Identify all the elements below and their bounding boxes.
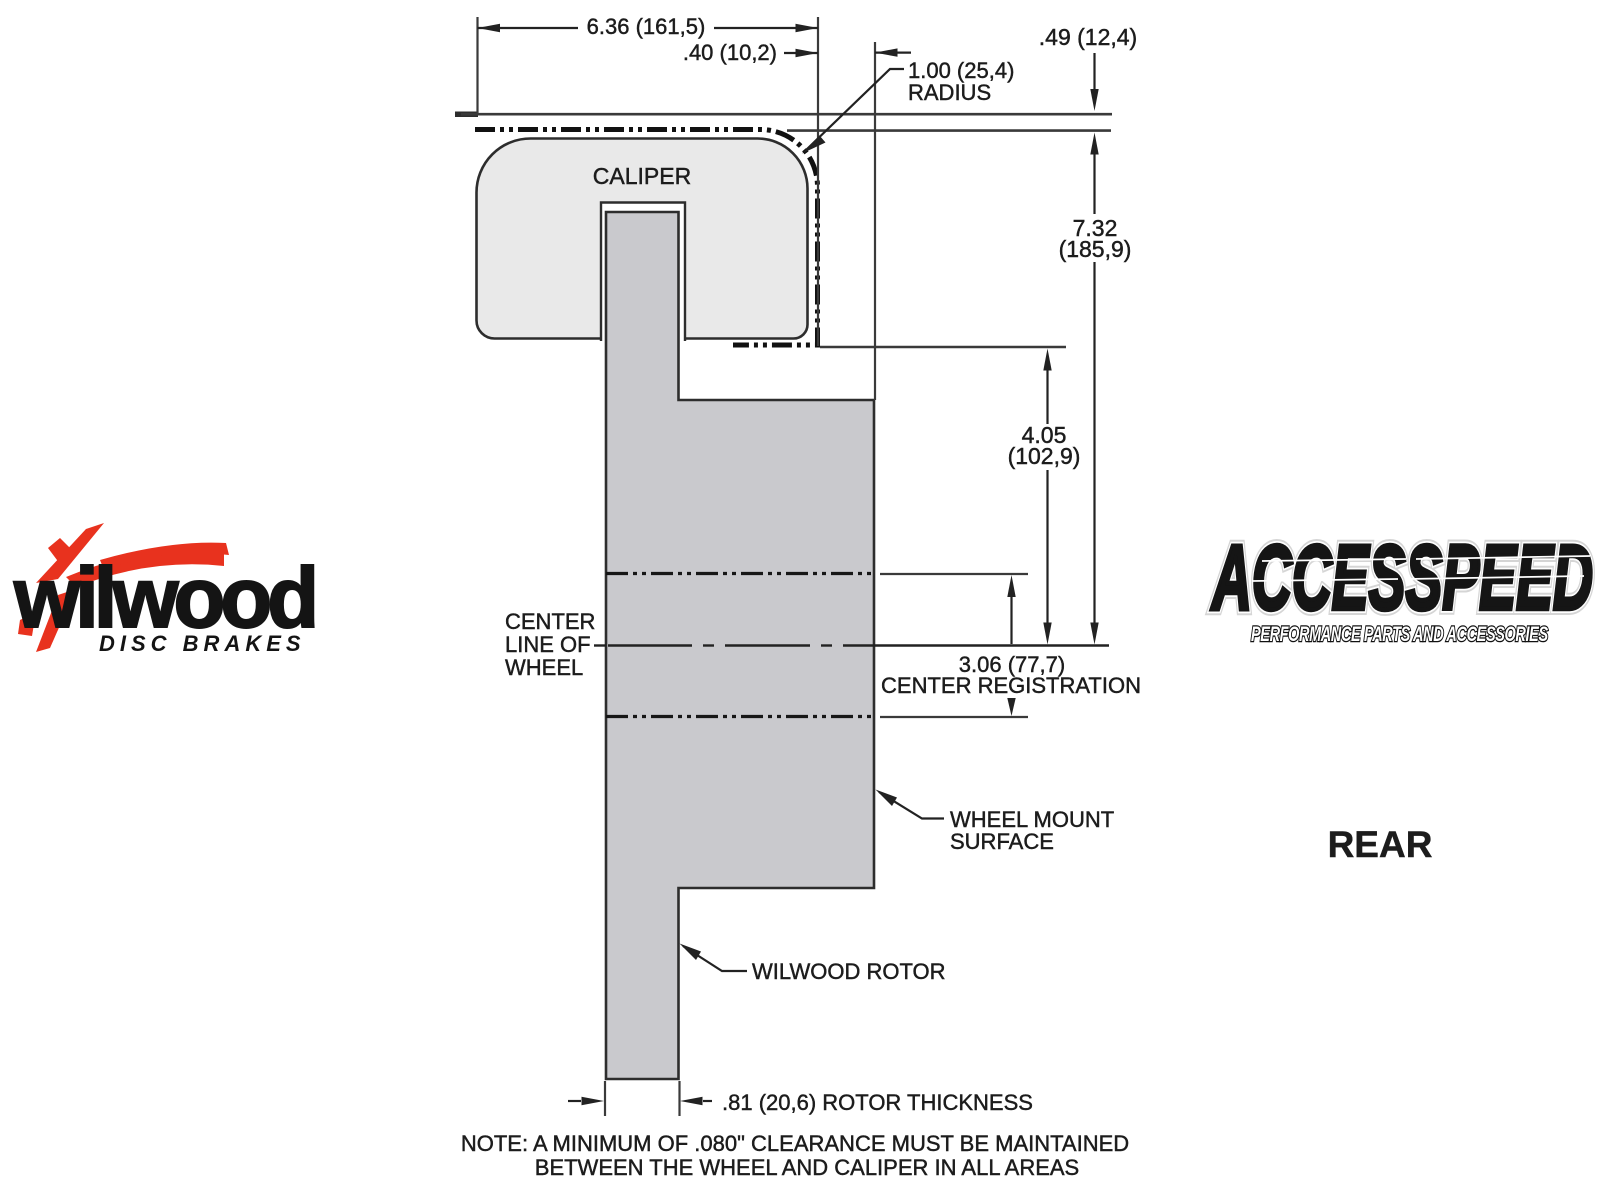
svg-text:CALIPER: CALIPER — [593, 163, 691, 189]
svg-text:.81 (20,6) ROTOR THICKNESS: .81 (20,6) ROTOR THICKNESS — [722, 1090, 1033, 1115]
svg-text:RADIUS: RADIUS — [908, 80, 991, 105]
svg-text:CENTER REGISTRATION: CENTER REGISTRATION — [881, 673, 1141, 698]
svg-text:PERFORMANCE PARTS AND ACCESSOR: PERFORMANCE PARTS AND ACCESSORIES — [1251, 622, 1548, 645]
svg-text:SURFACE: SURFACE — [950, 829, 1054, 854]
svg-text:ACCESSPEED: ACCESSPEED — [1211, 527, 1593, 630]
svg-text:REAR: REAR — [1328, 824, 1433, 865]
svg-text:WHEEL: WHEEL — [505, 655, 583, 680]
svg-text:WILWOOD ROTOR: WILWOOD ROTOR — [752, 959, 946, 984]
svg-text:DISC BRAKES: DISC BRAKES — [99, 631, 306, 656]
svg-text:(102,9): (102,9) — [1008, 443, 1081, 469]
svg-text:LINE OF: LINE OF — [505, 632, 591, 657]
svg-text:.40 (10,2): .40 (10,2) — [683, 40, 777, 65]
svg-text:NOTE: A MINIMUM OF .080" CLEAR: NOTE: A MINIMUM OF .080" CLEARANCE MUST … — [461, 1131, 1129, 1156]
svg-text:.49 (12,4): .49 (12,4) — [1039, 24, 1137, 50]
svg-text:BETWEEN THE WHEEL AND CALIPER: BETWEEN THE WHEEL AND CALIPER IN ALL ARE… — [535, 1155, 1079, 1180]
svg-text:6.36 (161,5): 6.36 (161,5) — [587, 14, 706, 39]
svg-text:(185,9): (185,9) — [1059, 236, 1132, 262]
svg-text:CENTER: CENTER — [505, 609, 595, 634]
